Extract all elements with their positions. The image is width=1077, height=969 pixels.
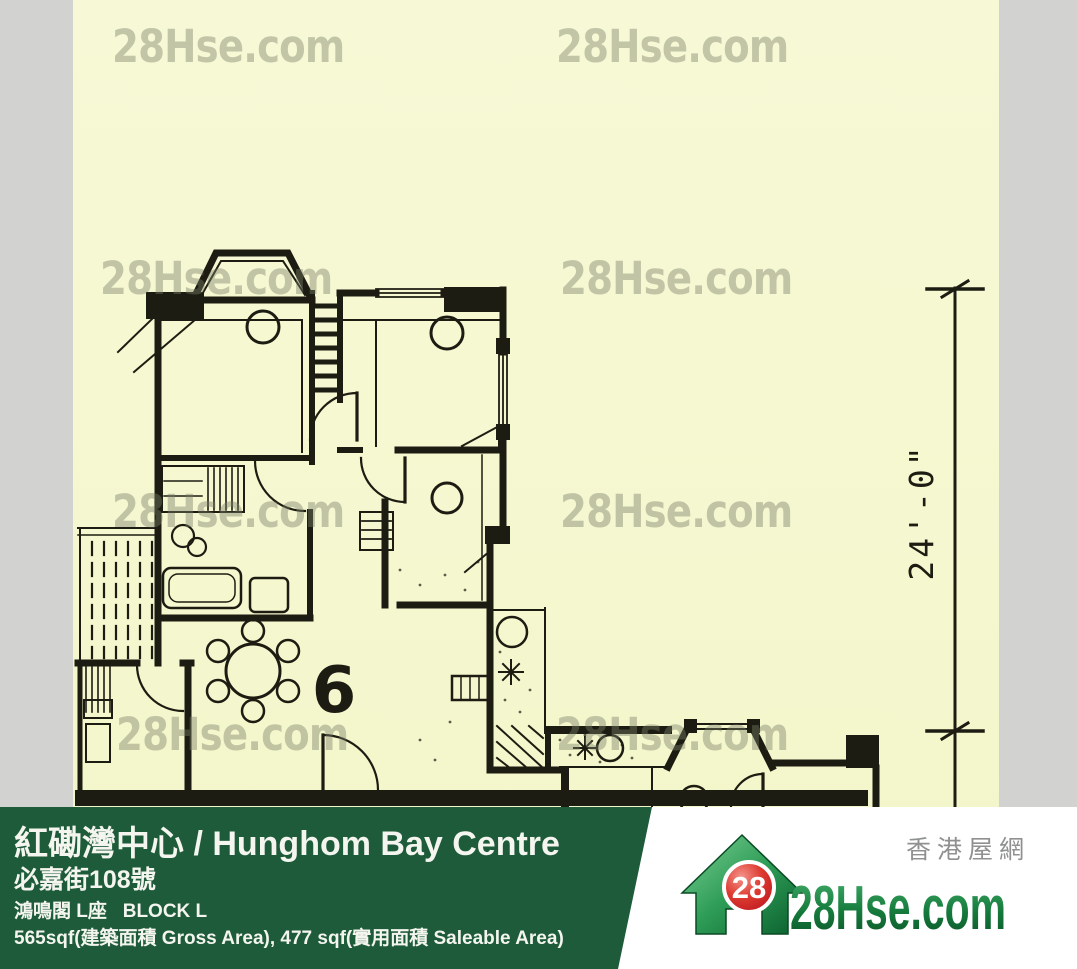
left-terrace-hatch [78, 528, 158, 663]
dining-set [207, 620, 299, 722]
estate-title: 紅磡灣中心 / Hunghom Bay Centre [14, 816, 560, 865]
plant-symbol [499, 660, 523, 684]
kitchen [84, 666, 112, 762]
watermark: 28Hse.com [100, 252, 332, 305]
bedroom-1 [118, 311, 302, 452]
watermark: 28Hse.com [112, 485, 344, 538]
floorplan-page: 6 24'-0" 28Hse.com 28Hse.com 28Hse.com 2… [0, 0, 1077, 969]
watermark: 28Hse.com [112, 20, 344, 73]
badge-number: 28 [732, 870, 766, 905]
bedroom-3 [432, 455, 490, 600]
page-margin-right [999, 0, 1077, 807]
ceiling-light [432, 483, 462, 513]
dimension-label: 24'-0" [902, 443, 941, 580]
info-banner: 紅磡灣中心 / Hunghom Bay Centre 必嘉街108號 鴻鳴閣 L… [0, 807, 1077, 969]
watermark: 28Hse.com [560, 485, 792, 538]
estate-address: 必嘉街108號 [14, 860, 156, 896]
area-info: 565sqf(建築面積 Gross Area), 477 sqf(實用面積 Sa… [14, 923, 564, 950]
watermark: 28Hse.com [116, 708, 348, 761]
bedroom-2 [344, 317, 499, 446]
wash-basin [497, 617, 527, 647]
ceiling-light [431, 317, 463, 349]
block-name: 鴻鳴閣 L座 BLOCK L [14, 896, 207, 923]
toilet [188, 538, 206, 556]
logo-tagline: 香港屋網 [906, 836, 1030, 864]
house-icon: 28 [682, 835, 802, 934]
floor-plan-drawing: 6 24'-0" [0, 0, 1077, 810]
watermark: 28Hse.com [556, 708, 788, 761]
page-margin-left [0, 0, 73, 807]
logo-brand-text: 28Hse.com [790, 874, 1006, 943]
sink [250, 578, 288, 612]
wardrobe-rungs [314, 306, 338, 390]
watermark: 28Hse.com [560, 252, 792, 305]
watermark: 28Hse.com [556, 20, 788, 73]
ceiling-light [247, 311, 279, 343]
dining-table [226, 644, 280, 698]
tv-cabinet [452, 676, 489, 700]
logo-28hse: 28 28Hse.com 香港屋網 [676, 825, 1030, 957]
dimension-line: 24'-0" [902, 281, 983, 808]
